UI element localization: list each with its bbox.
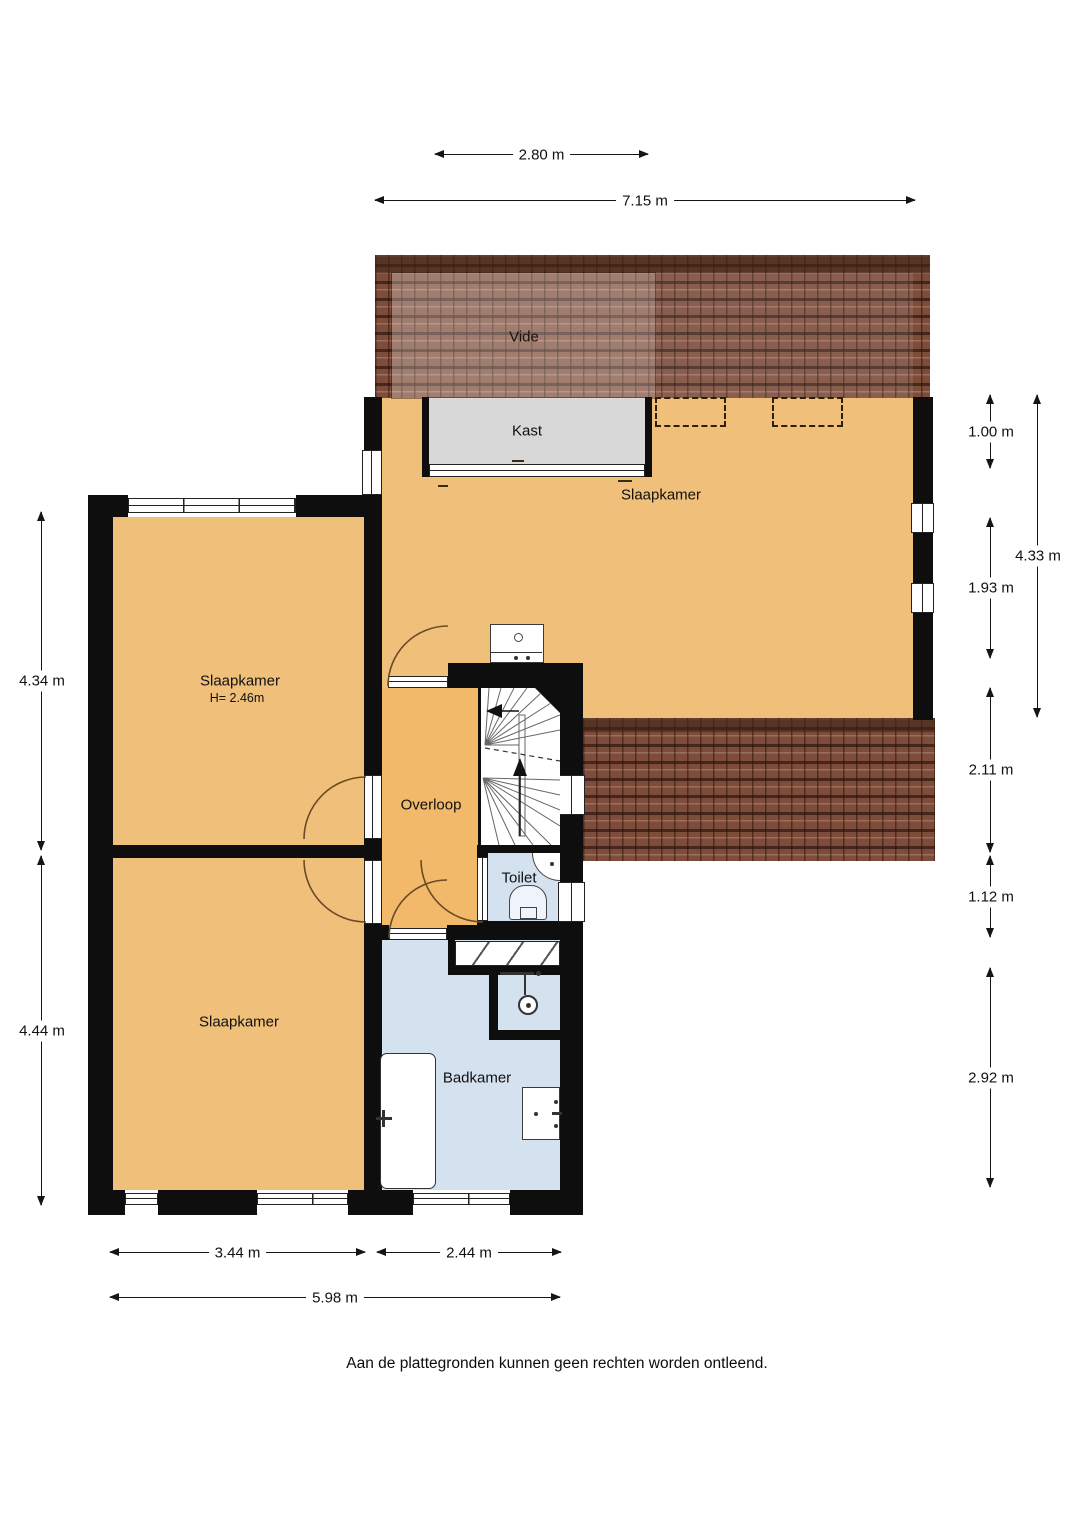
ceiling-height-note: H= 2.46m (210, 691, 265, 705)
shower-riser (524, 975, 526, 995)
dimension-label: 5.98 m (306, 1289, 364, 1308)
wall-bathroom-right (560, 922, 583, 1190)
window-main-east-2 (911, 583, 934, 613)
window-bottom-1 (125, 1193, 158, 1205)
wall-stair-right-a (560, 688, 583, 775)
understairs-nook (455, 941, 560, 966)
dimension-label: 2.92 m (963, 1067, 1019, 1088)
sink-tap (552, 1112, 562, 1115)
dimension-label: 1.00 m (963, 421, 1019, 442)
dimension-label: 2.11 m (964, 760, 1019, 781)
wall-toilet-top (481, 845, 560, 853)
sink-drain (534, 1112, 538, 1116)
dimension-label: 2.80 m (513, 146, 571, 165)
bathtub-icon (380, 1053, 436, 1189)
room-label-bedroom-main: Slaapkamer (621, 487, 701, 504)
wall-bottom-a (88, 1190, 125, 1215)
wall-shower-bottom (489, 1030, 583, 1040)
wall-right-b (913, 533, 933, 583)
room-label-bedroom-left-bottom: Slaapkamer (199, 1014, 279, 1031)
closet-sliding-doors (429, 464, 645, 477)
roof-window-outline (772, 397, 843, 427)
window-bottom-3 (413, 1193, 510, 1205)
wall-closet-right (645, 397, 652, 477)
dimension-label: 4.44 m (14, 1020, 70, 1041)
sink-knob (554, 1100, 558, 1104)
washbasin-edge (491, 652, 542, 653)
room-label-bedroom-left-top: Slaapkamer (200, 673, 280, 690)
roof-top-ridge (375, 255, 930, 273)
roof-window-outline (655, 397, 726, 427)
wall-toilet-bottom (477, 921, 583, 940)
sink-knob (554, 1124, 558, 1128)
wall-spine-c (364, 839, 382, 860)
wall-stair-landing (478, 688, 481, 845)
dimension-label: 7.15 m (616, 192, 674, 211)
wall-landing-bottom-a (364, 925, 389, 940)
disclaimer-text: Aan de plattegronden kunnen geen rechten… (346, 1355, 767, 1373)
wall-toilet-left-a (477, 845, 488, 857)
door-toilet (477, 857, 488, 921)
landing-floor (382, 688, 481, 940)
wall-bottom-d (510, 1190, 583, 1215)
washbasin-tap (514, 656, 518, 660)
washbasin-drain (514, 633, 523, 642)
wall-between-bedrooms (88, 845, 364, 858)
shower-tap-bar (500, 972, 534, 975)
wall-top-left-a (88, 495, 128, 517)
room-label-bathroom: Badkamer (443, 1070, 511, 1087)
bathroom-sink-icon (522, 1087, 560, 1140)
wall-stair-right-b (560, 815, 583, 882)
floorplan: Vide Kast Slaapkamer Slaapkamer H= 2.46m… (0, 0, 1080, 1527)
room-label-vide: Vide (509, 329, 539, 346)
wall-stair-chamfer (535, 688, 560, 713)
window-bottom-2 (257, 1193, 348, 1205)
wall-spine-b (364, 495, 382, 775)
wall-landing-bottom-b (447, 925, 481, 940)
door-bedroom-main (388, 676, 448, 688)
wall-stair-top (448, 663, 583, 688)
door-bedroom-left-bottom (364, 860, 382, 924)
window-toilet (558, 882, 585, 922)
toilet-bowl-base (520, 907, 537, 919)
window-main-west (362, 450, 382, 495)
washbasin-tap (526, 656, 530, 660)
dimension-label: 3.44 m (209, 1244, 267, 1263)
door-bedroom-left-top (364, 775, 382, 839)
door-bathroom (389, 928, 447, 940)
wall-right-c (913, 613, 933, 720)
window-main-east-1 (911, 503, 934, 533)
shower-tap-knob (536, 971, 541, 976)
window-stairwell (558, 775, 585, 815)
room-label-landing: Overloop (401, 797, 462, 814)
roof-light-area (655, 273, 913, 398)
washbasin-icon (490, 624, 544, 663)
window-top-left (128, 498, 296, 513)
room-label-kast: Kast (512, 423, 542, 440)
roof-right-ridge (583, 718, 935, 732)
closet-slide-mark (512, 460, 524, 462)
dimension-label: 4.33 m (1010, 546, 1066, 567)
dimension-label: 4.34 m (14, 671, 70, 692)
wall-bottom-c (348, 1190, 413, 1215)
wall-shower-left (489, 966, 498, 1040)
closet-slide-mark (618, 480, 632, 482)
wall-spine-a (364, 397, 382, 450)
closet-slide-mark (438, 485, 448, 487)
roof-right (583, 718, 935, 861)
dimension-label: 1.12 m (963, 886, 1019, 907)
wall-right-a (913, 397, 933, 503)
bathtub-tap (382, 1110, 385, 1127)
dimension-label: 2.44 m (440, 1244, 498, 1263)
shower-head-icon (518, 995, 538, 1015)
room-label-toilet: Toilet (501, 870, 536, 887)
wall-bottom-b (158, 1190, 257, 1215)
wall-closet-left (422, 397, 429, 477)
corner-sink-tap (550, 862, 554, 866)
dimension-label: 1.93 m (963, 578, 1019, 599)
